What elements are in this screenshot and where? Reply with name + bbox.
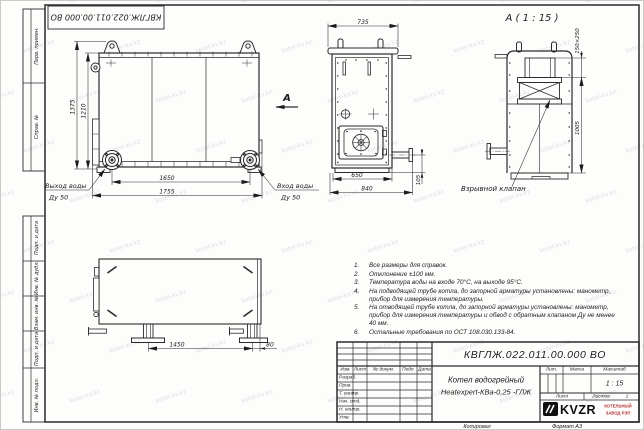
note-number: 4. xyxy=(354,288,369,304)
col-ndokum: № докум. xyxy=(373,368,394,373)
dim-top-width: 735 xyxy=(357,19,369,26)
kvzr-logo-sub2: ЗАВОД РЭП xyxy=(606,410,631,415)
margin-label: Подп. и дата xyxy=(34,221,40,255)
col-izm: Изм. xyxy=(340,368,350,373)
dim-valve-size: 150×250 xyxy=(575,28,581,54)
sheets-label: Листов xyxy=(592,394,609,399)
product-name-line2: Heatexpert-КВа-0,25 -ГЛЖ xyxy=(441,388,531,397)
inlet-label: Вход воды xyxy=(277,182,313,190)
dim-width-total: 1755 xyxy=(159,189,174,196)
row-utv: Утв. xyxy=(339,416,350,421)
margin-label: Справ. № xyxy=(34,115,40,139)
sheets-value: 1 xyxy=(626,394,629,399)
note-number: 5. xyxy=(354,304,369,328)
row-nachotd: Нач. отд. xyxy=(339,400,361,405)
dim-body-width: 650 xyxy=(351,172,363,179)
note-number: 6. xyxy=(354,329,369,337)
row-razrab: Разраб. xyxy=(339,376,356,381)
note-number: 2. xyxy=(354,271,369,279)
view-arrow-letter: А xyxy=(282,93,291,104)
dim-leg-offset: 80 xyxy=(266,342,274,349)
col-podp: Подп. xyxy=(402,368,415,373)
dim-leg-spacing: 1450 xyxy=(169,342,184,349)
margin-label: Взам. инв. № xyxy=(34,296,40,330)
col-list: Лист xyxy=(354,368,366,373)
footer-format: Формат А3 xyxy=(552,424,582,430)
row-nkontr: Н. контр. xyxy=(339,408,361,413)
front-view: 1375 1210 1650 1755 Выход воды Ду 50 Вхо… xyxy=(45,41,319,202)
scale-label: Масштаб xyxy=(603,368,625,373)
drawing-canvas: Перв. примен. Справ. № Подп. и дата Инв.… xyxy=(1,1,644,430)
top-stamp-number: КВГЛЖ.022.011.00.000 ВО xyxy=(51,13,162,22)
note-text: На отводящей трубе котла, до запорной ар… xyxy=(369,304,620,328)
row-prov: Пров. xyxy=(339,384,352,389)
note-number: 3. xyxy=(354,279,369,287)
margin-labels: Перв. примен. Справ. № Подп. и дата Инв.… xyxy=(34,27,40,412)
lit-label: Лит. xyxy=(546,368,557,373)
note-text: Температура воды на входе 70°С, на выход… xyxy=(369,279,620,287)
inlet-size: Ду 50 xyxy=(280,194,300,202)
valve-label: Взрывной клапан xyxy=(461,185,526,193)
detail-view-a: А ( 1 : 15 ) xyxy=(461,13,586,193)
notes-block: 1.Все размеры для справок. 2.Отклонение … xyxy=(354,262,620,337)
note-item: 6.Остальные требования по ОСТ 108.030.13… xyxy=(354,329,620,337)
dim-total-depth: 840 xyxy=(361,186,373,193)
note-text: Остальные требования по ОСТ 108.030.133-… xyxy=(369,329,620,337)
col-data: Дата xyxy=(418,368,431,373)
note-item: 1.Все размеры для справок. xyxy=(354,262,620,270)
margin-label: Инв. № подл. xyxy=(34,378,40,413)
doc-number: КВГЛЖ.022.011.00.000 ВО xyxy=(464,349,606,361)
dim-height-total: 1375 xyxy=(70,99,77,114)
product-name-line1: Котел водогрейный xyxy=(448,376,524,385)
dim-detail-height: 1005 xyxy=(575,121,581,135)
detail-title: А ( 1 : 15 ) xyxy=(505,13,559,24)
note-text: Все размеры для справок. xyxy=(369,262,620,270)
note-item: 2.Отклонение ±100 мм. xyxy=(354,271,620,279)
note-item: 3.Температура воды на входе 70°С, на вых… xyxy=(354,279,620,287)
kvzr-logo-icon xyxy=(543,402,558,416)
scale-value: 1 : 15 xyxy=(606,380,624,387)
note-number: 1. xyxy=(354,262,369,270)
side-view: 735 650 840 105 xyxy=(328,19,426,195)
sheet-label: Лист xyxy=(556,394,568,399)
margin-label: Перв. примен. xyxy=(34,27,40,65)
note-item: 5.На отводящей трубе котла, до запорной … xyxy=(354,304,620,328)
kvzr-logo-text: KVZR xyxy=(560,403,596,417)
dim-height-body: 1210 xyxy=(81,103,88,118)
footer-copied: Копировал xyxy=(463,424,490,430)
row-tkontr: Т. контр. xyxy=(339,392,360,397)
note-text: На подводящей трубе котла, до запорной а… xyxy=(369,288,620,304)
margin-label: Подп. и дата xyxy=(34,332,40,366)
note-item: 4.На подводящей трубе котла, до запорной… xyxy=(354,288,620,304)
drawing-sheet: kotel-kv.kzkotel-kv.kzkotel-kv.kzkotel-k… xyxy=(0,0,644,430)
dim-pipe-height: 105 xyxy=(416,174,422,185)
outlet-size: Ду 50 xyxy=(48,194,68,202)
note-text: Отклонение ±100 мм. xyxy=(369,271,620,279)
kvzr-logo-sub1: КОТЕЛЬНЫЙ xyxy=(604,404,631,409)
mass-label: Масса xyxy=(570,368,584,373)
outlet-label: Выход воды xyxy=(45,182,86,190)
margin-label: Инв. № дубл. xyxy=(34,261,40,295)
plan-view: 1450 80 xyxy=(89,259,278,352)
dim-width-flanges: 1650 xyxy=(159,175,174,182)
